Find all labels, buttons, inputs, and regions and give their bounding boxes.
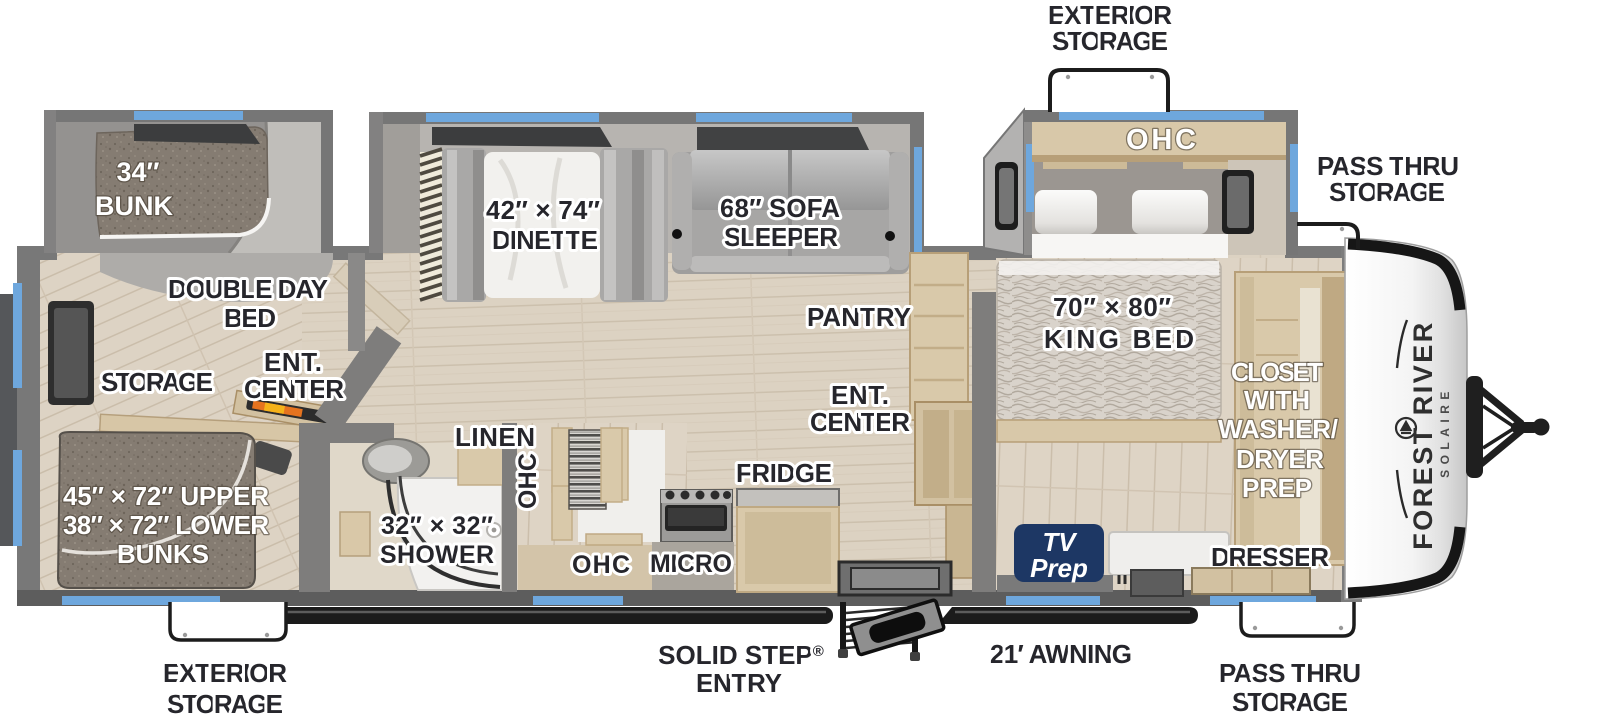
svg-text:STORAGE: STORAGE bbox=[101, 367, 213, 397]
svg-text:SLEEPER: SLEEPER bbox=[724, 222, 838, 252]
svg-text:WASHER/: WASHER/ bbox=[1218, 414, 1338, 444]
svg-text:68″ SOFA: 68″ SOFA bbox=[720, 193, 840, 223]
svg-text:38″ × 72″ LOWER: 38″ × 72″ LOWER bbox=[63, 510, 269, 540]
svg-text:32″ × 32″: 32″ × 32″ bbox=[381, 512, 493, 540]
svg-text:DOUBLE DAY: DOUBLE DAY bbox=[168, 274, 328, 304]
svg-text:PASS THRU: PASS THRU bbox=[1219, 658, 1361, 688]
svg-text:WITH: WITH bbox=[1244, 385, 1310, 415]
svg-text:LINEN: LINEN bbox=[455, 422, 535, 452]
svg-text:BUNKS: BUNKS bbox=[117, 539, 209, 569]
svg-text:CLOSET: CLOSET bbox=[1231, 357, 1323, 387]
svg-text:STORAGE: STORAGE bbox=[1052, 26, 1168, 56]
svg-text:BUNK: BUNK bbox=[95, 191, 173, 221]
svg-text:45″ × 72″ UPPER: 45″ × 72″ UPPER bbox=[63, 481, 269, 511]
svg-text:ENTRY: ENTRY bbox=[696, 668, 782, 698]
svg-text:CENTER: CENTER bbox=[810, 407, 910, 437]
svg-text:SOLAIRE: SOLAIRE bbox=[1438, 386, 1452, 478]
svg-text:OHC: OHC bbox=[1126, 124, 1196, 156]
svg-text:MICRO: MICRO bbox=[650, 550, 732, 578]
svg-text:STORAGE: STORAGE bbox=[1329, 177, 1445, 207]
svg-text:DRYER: DRYER bbox=[1236, 444, 1324, 474]
svg-text:EXTERIOR: EXTERIOR bbox=[163, 658, 287, 688]
svg-text:FRIDGE: FRIDGE bbox=[736, 458, 832, 488]
svg-text:STORAGE: STORAGE bbox=[1232, 687, 1348, 717]
svg-text:ENT.: ENT. bbox=[264, 347, 322, 377]
svg-text:STORAGE: STORAGE bbox=[167, 689, 283, 719]
svg-text:42″ × 74″: 42″ × 74″ bbox=[486, 195, 600, 225]
svg-text:70″ × 80″: 70″ × 80″ bbox=[1053, 292, 1171, 322]
svg-text:21′ AWNING: 21′ AWNING bbox=[990, 639, 1132, 669]
svg-text:PANTRY: PANTRY bbox=[807, 302, 911, 332]
svg-text:SOLID STEP®: SOLID STEP® bbox=[658, 640, 824, 670]
svg-text:ENT.: ENT. bbox=[831, 380, 889, 410]
svg-text:PREP: PREP bbox=[1242, 473, 1312, 503]
svg-text:CENTER: CENTER bbox=[244, 374, 344, 404]
svg-text:OHC: OHC bbox=[514, 453, 542, 509]
svg-text:Prep: Prep bbox=[1030, 553, 1088, 583]
svg-text:BED: BED bbox=[224, 303, 276, 333]
svg-text:OHC: OHC bbox=[572, 551, 630, 579]
svg-text:SHOWER: SHOWER bbox=[380, 541, 494, 569]
svg-text:FOREST RIVER: FOREST RIVER bbox=[1408, 320, 1438, 550]
svg-text:DINETTE: DINETTE bbox=[492, 225, 598, 255]
svg-text:34″: 34″ bbox=[117, 157, 160, 187]
